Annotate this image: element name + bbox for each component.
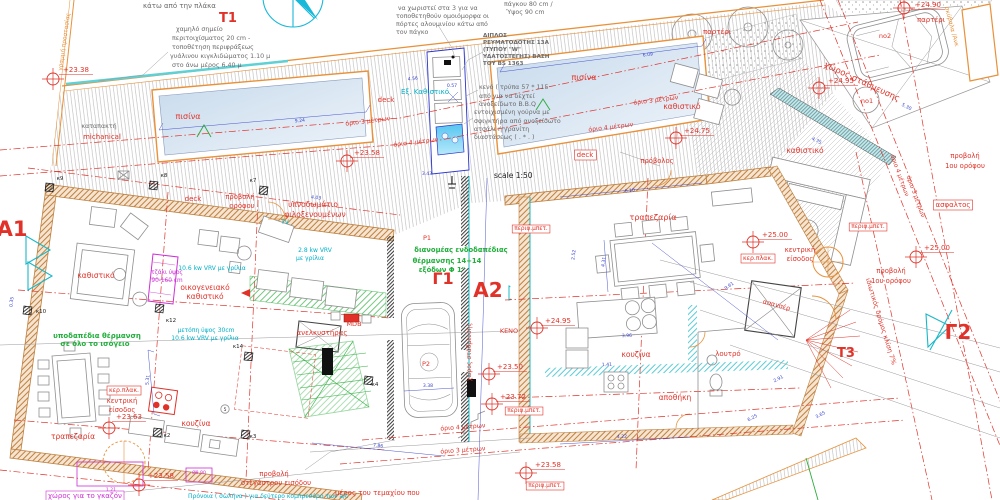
label-parteri-2: παρτέρι: [917, 16, 946, 24]
note-bbq-2: από για να δεχτεί: [479, 92, 536, 100]
note-slab: κάτω από την πλάκα: [143, 2, 216, 10]
dimension-label: 6.10: [624, 187, 635, 194]
elevation-value: +23.63: [116, 413, 142, 421]
label-perif-3: περιφ.μπετ.: [507, 408, 541, 414]
room-storage: αποθήκη: [659, 393, 692, 402]
site-plan-drawing: κ9κ8κ7κ10κ12κ14κ2κ3κ4 +23.38+23.58+24.90…: [0, 0, 1000, 500]
bbq-sink: [436, 124, 464, 155]
site-plan-page: κ9κ8κ7κ10κ12κ14κ2κ3κ4 +23.38+23.58+24.90…: [0, 0, 1000, 500]
dimension-label: 6.09: [642, 51, 653, 58]
label-perif-2: περιφ.μπετ.: [851, 224, 885, 230]
label-entrance-a1-1: κεντρική: [107, 397, 138, 405]
road-edge: [712, 438, 866, 500]
deck-label-1: deck: [378, 96, 396, 104]
label-vrv1a: 2.8 kw VRV: [298, 247, 333, 254]
label-p2: P2: [422, 360, 430, 368]
dimension-label: 2.52: [570, 249, 577, 260]
room-living-a1: καθιστικό: [77, 271, 115, 280]
label-entrance-a2-1: κεντρική: [785, 246, 816, 254]
note-sink-2: σφιγκτήρα από ανοξείδωτο: [474, 117, 561, 125]
label-parteri-1: παρτέρι: [703, 28, 732, 36]
label-manifold-1: διανομέας ενδοδαπέδιας: [414, 246, 507, 254]
label-lawn: χώρος για το γκαζόν: [48, 492, 122, 500]
elevation-value: +24.75: [684, 127, 710, 135]
label-no2: no2: [879, 32, 891, 40]
room-dining-a1: τραπεζαρία: [51, 432, 95, 441]
note-socket-4: ΥΔΑΤΟΣΤΕΓΗΣ) ΒΑΣΗ: [482, 54, 550, 60]
column-label: κ10: [36, 309, 47, 315]
elevation-value: +23.72: [500, 393, 526, 401]
elevation-value: +23.50: [497, 363, 523, 371]
elevation-value: +25.00: [924, 244, 950, 252]
note-doors-1: να χωριστεί στα 3 για να: [398, 4, 478, 12]
label-canopy-1: προβολή: [259, 470, 288, 478]
elevation-value: +23.58: [535, 461, 561, 469]
note-sink-3: ατσάλι ή γρανίτη: [474, 125, 529, 133]
note-parapet-5: στο άνω μέρος 6.40 μ: [172, 61, 242, 69]
elevation-value: +24.95: [545, 317, 571, 325]
label-canopy-2: στεγάστρου εισόδου: [241, 479, 311, 487]
room-pool-left: πισίνα: [175, 112, 200, 121]
label-provoli-2a: προβολή: [876, 267, 905, 275]
label-kerplak-a2: κερ.πλακ.: [743, 255, 773, 262]
note-socket-2: ΡΕΥΜΑΤΟΔΟΤΗΣ 13Α: [483, 40, 550, 46]
zone-label-t3: T3: [837, 346, 855, 361]
zone-label-a2: A2: [473, 278, 502, 302]
elevation-marker: +23.58: [515, 461, 565, 484]
label-parking-2: χώρος στάθμευσης: [466, 323, 473, 381]
dimension-label: 9.24: [295, 118, 306, 125]
note-parapet-1: χαμηλό σημείο: [176, 25, 223, 33]
column-label: κ2: [164, 433, 171, 439]
label-keno: ΚΕΝΟ: [500, 327, 518, 335]
label-perif-4: περιφ.μπετ.: [528, 483, 562, 489]
kitchen-island: [577, 297, 657, 338]
dimension-label: 4.31: [600, 256, 607, 267]
dimension-label: 3.43: [422, 171, 432, 177]
column-label: κ7: [250, 178, 257, 184]
dimension-label: 1.41: [602, 362, 613, 368]
label-manifold-2: θέρμανσης 14+14: [413, 257, 482, 265]
note-bbq-3: ανοξείδωτο B.B.Q: [479, 100, 536, 108]
note-socket-1: ΔΙΠΛΟΣ: [483, 33, 507, 39]
column-label: κ9: [57, 176, 64, 182]
note-doors-3: πόρτες αλουμινίου κάτω από: [396, 20, 488, 28]
room-bath: λουτρό: [715, 350, 740, 358]
column-label: κ8: [161, 173, 168, 179]
note-parapet-3: τοποθέτηση περιφράξεως: [172, 43, 254, 51]
note-doors-4: τον πάγκο: [396, 28, 429, 36]
label-asfaltos: ασφαλτος: [935, 201, 970, 209]
note-bbq-1: κενό ( τρύπα 57 * 115: [479, 83, 549, 91]
label-vrv1b: με γρίλια: [296, 255, 324, 262]
label-mdb: MDB: [346, 320, 361, 328]
elevation-value: +23.38: [63, 66, 89, 74]
note-socket-3: (ΤΥΠΟΥ "W": [483, 47, 521, 53]
note-parapet-2: περιτοιχίσματος 20 cm -: [172, 34, 250, 42]
deck-label-3: deck: [577, 151, 595, 159]
label-vrv2: 10.6 kw VRV με γρίλια: [178, 265, 245, 272]
room-guest-2: φιλοξενουμένων: [284, 210, 345, 219]
elevation-value: +25.00: [762, 231, 788, 239]
label-perif-1: περιφ.μπετ.: [514, 226, 548, 232]
label-circled5: 5: [224, 407, 227, 413]
label-kerplak-a1: κερ.πλακ.: [109, 387, 139, 394]
label-orio3-4: όριο 3 μέτρων: [905, 175, 927, 219]
room-family-1: οικογενειακό: [180, 283, 230, 292]
room-dining-a2: τραπεζαρία: [630, 213, 677, 222]
label-provolos: πρόβολος: [640, 157, 673, 165]
room-family-2: καθιστικό: [186, 292, 224, 301]
label-provoli-1a: προβολή: [950, 152, 979, 160]
label-trapdoor: καταπακτή: [81, 122, 116, 130]
column-label: κ3: [250, 434, 257, 440]
label-fireplace-1: τζάκι ύψος: [151, 269, 183, 276]
note-bench-2: Ύψος 90 cm: [505, 8, 545, 16]
elevation-marker: +23.38: [42, 66, 93, 90]
scale-label: scale 1:50: [494, 171, 533, 180]
dimension-label: 3.96: [622, 333, 633, 339]
label-heating-2: σε όλο το ισόγειο: [60, 340, 129, 348]
note-parapet-4: γυάλινου κιγκλιδώματος 1.10 μ: [170, 52, 270, 60]
dimension-label: 4.22: [617, 434, 628, 440]
room-living-deck: καθιστικό: [663, 102, 701, 111]
north-arrow-icon: [263, 0, 323, 27]
dimension-label: 5.31: [145, 374, 152, 385]
label-mechanical: michanical: [83, 133, 121, 141]
zone-label-g2: Γ2: [945, 320, 972, 344]
deck-label-2: deck: [185, 195, 203, 203]
room-living-a2: καθιστικό: [786, 146, 824, 155]
socket-icon: [444, 60, 451, 65]
label-provoli-2b: 1ου ορόφου: [871, 277, 911, 285]
label-road: ιδιωτικός δρόμος κλίση 7%: [864, 277, 898, 366]
room-pool-right: πισίνα: [571, 73, 596, 82]
dimension-label: 3.38: [423, 383, 433, 389]
label-entrance-a1-2: είσοδος: [109, 406, 136, 414]
label-vrv3a: μετόπη ύψος 30cm: [178, 327, 235, 334]
elevation-marker: +25.00: [905, 244, 954, 268]
dimension-label: 0.35: [9, 296, 16, 307]
note-sink-4: διαστάσεως ( . * . ): [474, 133, 535, 141]
label-entrance-a2-2: είσοδος: [787, 255, 814, 263]
label-provoli-3b: ορόφου: [229, 202, 254, 210]
label-p1: P1: [423, 234, 431, 242]
label-pronoia: Πρόνοια ( σωλήνα ) για δεύτερο κομπρεσόρ…: [188, 493, 348, 500]
zone-label-t1: T1: [219, 11, 237, 26]
note-doors-2: τοποθετηθούν ομοιόμορφα οι: [396, 12, 489, 20]
elevation-marker: +23.58: [128, 472, 178, 496]
elevation-value: +24.90: [915, 1, 941, 9]
room-elevator-a1: ανελκυστήρας: [297, 329, 348, 337]
zone-label-a1: A1: [0, 217, 27, 241]
elevation-value: +23.58: [148, 472, 174, 480]
column-label: κ12: [166, 318, 176, 324]
dimension-label: Ø8.90: [192, 469, 206, 476]
room-kitchen-a1: κουζίνα: [181, 419, 210, 428]
dimension-label: 3.65: [815, 410, 827, 420]
dimension-label: 4.56: [407, 75, 418, 82]
label-provoli-3a: προβολή: [225, 193, 254, 201]
label-provoli-1b: 1ου ορόφου: [945, 162, 985, 170]
label-vrv3b: 10.6 kw VRV με γρίλια: [171, 335, 238, 342]
elevation-value: +23.58: [354, 149, 380, 157]
label-fireplace-2: 90-160 cm: [151, 278, 183, 284]
room-guest-1: υπνοδωμάτιο: [288, 200, 338, 209]
note-sink-1: εντοιχισμένη γούρνα με: [474, 108, 550, 116]
note-bench-1: πάγκου 80 cm /: [504, 0, 553, 8]
label-manifold-3: εξόδων Φ 1": [419, 266, 465, 274]
dimension-label: 7.86: [373, 442, 384, 449]
column-label: κ14: [233, 344, 244, 350]
label-no1: no1: [861, 97, 873, 105]
room-kitchen-a2: κουζίνα: [621, 350, 650, 359]
label-heating-1: υποδαπέδια θέρμανση: [53, 332, 141, 340]
note-socket-5: ΤΟΥ BS 1363: [483, 61, 523, 67]
label-tv: TV: [280, 219, 290, 226]
label-ext-seating: Εξ. Καθιστικό: [401, 88, 449, 96]
column-label: κ4: [372, 382, 379, 388]
